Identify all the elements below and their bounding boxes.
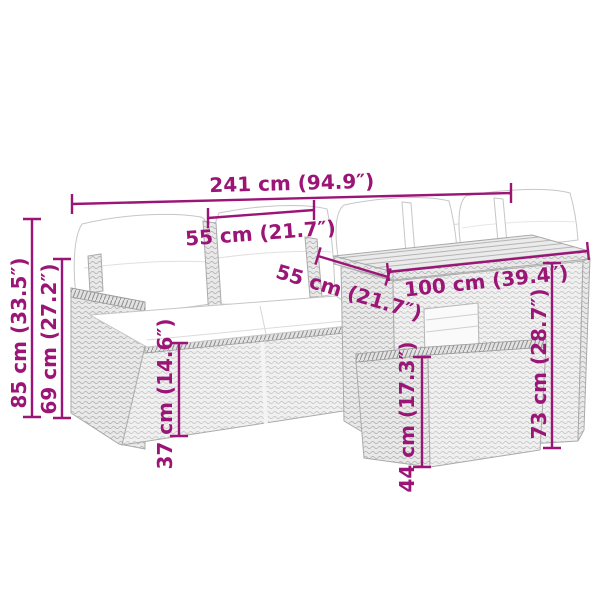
dimension-total-height: 85 cm (33.5″)	[7, 219, 41, 417]
product-dimension-diagram: 241 cm (94.9″) 55 cm (21.7″) 55 cm (21.7…	[0, 0, 600, 600]
dimension-label-total-width: 241 cm (94.9″)	[209, 169, 375, 197]
dimension-label-seat-height: 37 cm (14.6″)	[153, 318, 177, 469]
furniture-line-art: 241 cm (94.9″) 55 cm (21.7″) 55 cm (21.7…	[0, 0, 600, 600]
dimension-label-ottoman-height: 44 cm (17.3″)	[395, 341, 419, 492]
dimension-label-table-height: 73 cm (28.7″)	[527, 288, 551, 439]
dimension-label-total-height: 85 cm (33.5″)	[7, 257, 31, 408]
back-post-1	[88, 254, 103, 293]
dimension-back-height: 69 cm (27.2″)	[37, 259, 71, 418]
ottoman	[356, 339, 546, 467]
dimension-label-back-height: 69 cm (27.2″)	[37, 263, 61, 414]
